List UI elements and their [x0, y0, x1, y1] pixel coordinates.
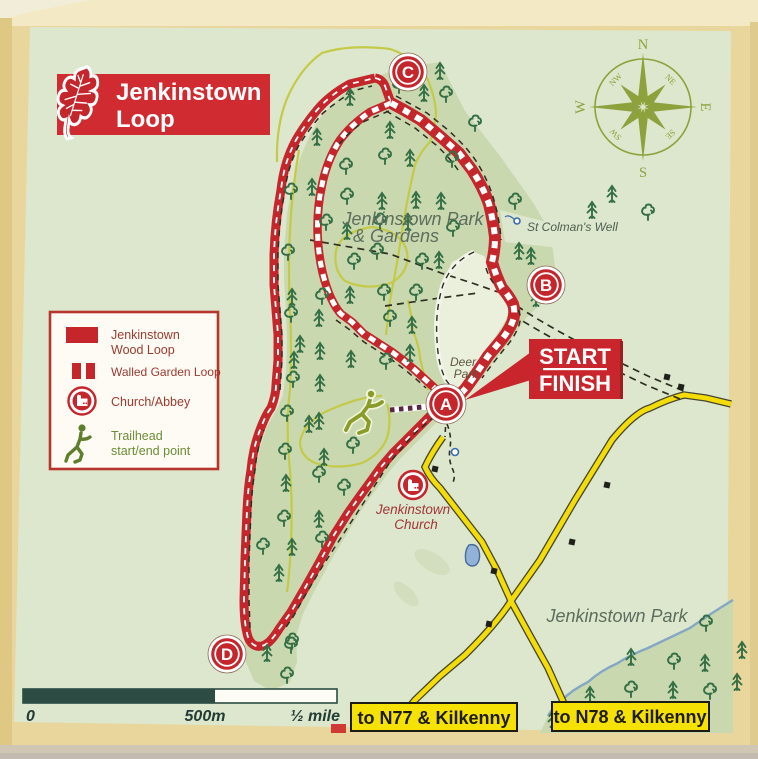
- svg-text:St Colman's Well: St Colman's Well: [527, 220, 618, 234]
- svg-text:0: 0: [26, 708, 35, 725]
- svg-text:Park: Park: [454, 367, 480, 381]
- svg-text:D: D: [221, 645, 233, 664]
- svg-text:Jenkinstown Park: Jenkinstown Park: [545, 606, 688, 626]
- svg-text:Jenkinstown: Jenkinstown: [375, 502, 450, 517]
- svg-text:500m: 500m: [185, 708, 226, 725]
- svg-text:S: S: [639, 165, 647, 181]
- svg-text:Jenkinstown: Jenkinstown: [116, 79, 261, 106]
- svg-text:Church: Church: [394, 517, 438, 532]
- svg-text:½ mile: ½ mile: [290, 708, 340, 725]
- svg-text:Loop: Loop: [116, 106, 175, 133]
- svg-text:C: C: [402, 63, 414, 82]
- svg-text:W: W: [573, 100, 589, 114]
- svg-text:& Gardens: & Gardens: [353, 226, 439, 246]
- svg-text:B: B: [540, 276, 552, 295]
- svg-text:Wood Loop: Wood Loop: [111, 343, 175, 357]
- svg-text:Church/Abbey: Church/Abbey: [111, 395, 191, 409]
- svg-text:A: A: [440, 395, 452, 414]
- svg-text:to N78 & Kilkenny: to N78 & Kilkenny: [553, 707, 706, 727]
- svg-text:E: E: [697, 103, 713, 112]
- svg-text:FINISH: FINISH: [539, 371, 611, 396]
- svg-text:N: N: [638, 37, 649, 53]
- svg-text:START: START: [539, 344, 611, 369]
- svg-text:start/end point: start/end point: [111, 444, 191, 458]
- svg-text:Walled Garden Loop: Walled Garden Loop: [111, 365, 221, 379]
- svg-text:to N77 & Kilkenny: to N77 & Kilkenny: [357, 708, 510, 728]
- svg-text:Trailhead: Trailhead: [111, 429, 163, 443]
- svg-text:Jenkinstown: Jenkinstown: [111, 328, 180, 342]
